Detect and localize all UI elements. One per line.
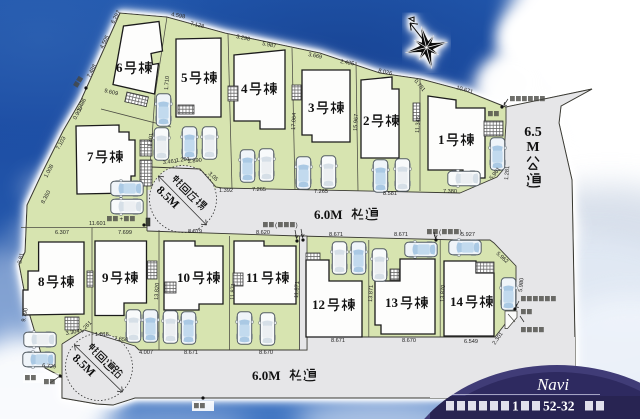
svg-text:11.871: 11.871	[294, 281, 301, 298]
svg-text:8.671: 8.671	[394, 232, 408, 238]
svg-text:1.401: 1.401	[148, 133, 155, 147]
svg-text:7.380: 7.380	[443, 189, 457, 195]
svg-text:11.601: 11.601	[89, 221, 106, 227]
svg-text:11.346: 11.346	[415, 116, 422, 133]
svg-text:3: 3	[308, 100, 315, 115]
svg-text:1.710: 1.710	[164, 76, 171, 90]
svg-text:10: 10	[177, 270, 190, 285]
svg-text:1: 1	[438, 132, 445, 147]
svg-text:+: +	[120, 217, 124, 223]
svg-text:7.265: 7.265	[314, 189, 328, 195]
svg-text:8.620: 8.620	[256, 230, 270, 236]
svg-text:6.0M: 6.0M	[314, 207, 343, 222]
svg-text:7.699: 7.699	[118, 230, 132, 236]
svg-text:12: 12	[312, 297, 325, 312]
svg-text:1: 1	[512, 399, 519, 414]
svg-text:): )	[296, 222, 298, 229]
svg-text:17.064: 17.064	[291, 113, 298, 130]
svg-text:6.0M: 6.0M	[252, 368, 281, 383]
svg-text:2: 2	[363, 113, 370, 128]
svg-text:Navi: Navi	[536, 375, 569, 394]
svg-text:7.265: 7.265	[252, 187, 266, 193]
svg-text:5.927: 5.927	[461, 232, 475, 238]
svg-text:15.967: 15.967	[353, 114, 360, 131]
svg-text:8.671: 8.671	[184, 350, 198, 356]
svg-text:52-32: 52-32	[543, 399, 575, 414]
svg-text:14: 14	[450, 294, 464, 309]
svg-text:6.307: 6.307	[55, 230, 69, 236]
svg-text:11: 11	[246, 270, 258, 285]
svg-text:8.679: 8.679	[188, 229, 202, 235]
svg-text:8.671: 8.671	[331, 338, 345, 344]
svg-text:1.392: 1.392	[219, 188, 233, 194]
svg-text:13: 13	[385, 295, 399, 310]
svg-text:8.671: 8.671	[329, 232, 343, 238]
svg-text:7: 7	[87, 149, 94, 164]
svg-text:6: 6	[116, 60, 123, 75]
svg-text:8.670: 8.670	[402, 338, 416, 344]
svg-text:13.871: 13.871	[368, 285, 375, 302]
svg-text:6.729: 6.729	[42, 363, 57, 370]
svg-text:8.581: 8.581	[383, 191, 397, 197]
svg-text:9.790: 9.790	[21, 307, 30, 322]
svg-text:1.815: 1.815	[95, 332, 109, 338]
svg-text:8.670: 8.670	[259, 350, 273, 356]
svg-text:9: 9	[102, 270, 109, 285]
svg-text:5: 5	[181, 70, 188, 85]
svg-text:8: 8	[38, 274, 45, 289]
svg-text:11.871: 11.871	[230, 283, 237, 300]
svg-text:6.5: 6.5	[524, 125, 542, 140]
svg-text:4: 4	[241, 81, 248, 96]
svg-text:1.281: 1.281	[504, 166, 511, 180]
svg-text:M: M	[526, 140, 539, 155]
svg-text:13.820: 13.820	[154, 283, 161, 300]
svg-text:13.870: 13.870	[440, 285, 447, 302]
svg-text:6.549: 6.549	[464, 339, 478, 345]
svg-text:4.007: 4.007	[139, 350, 153, 356]
